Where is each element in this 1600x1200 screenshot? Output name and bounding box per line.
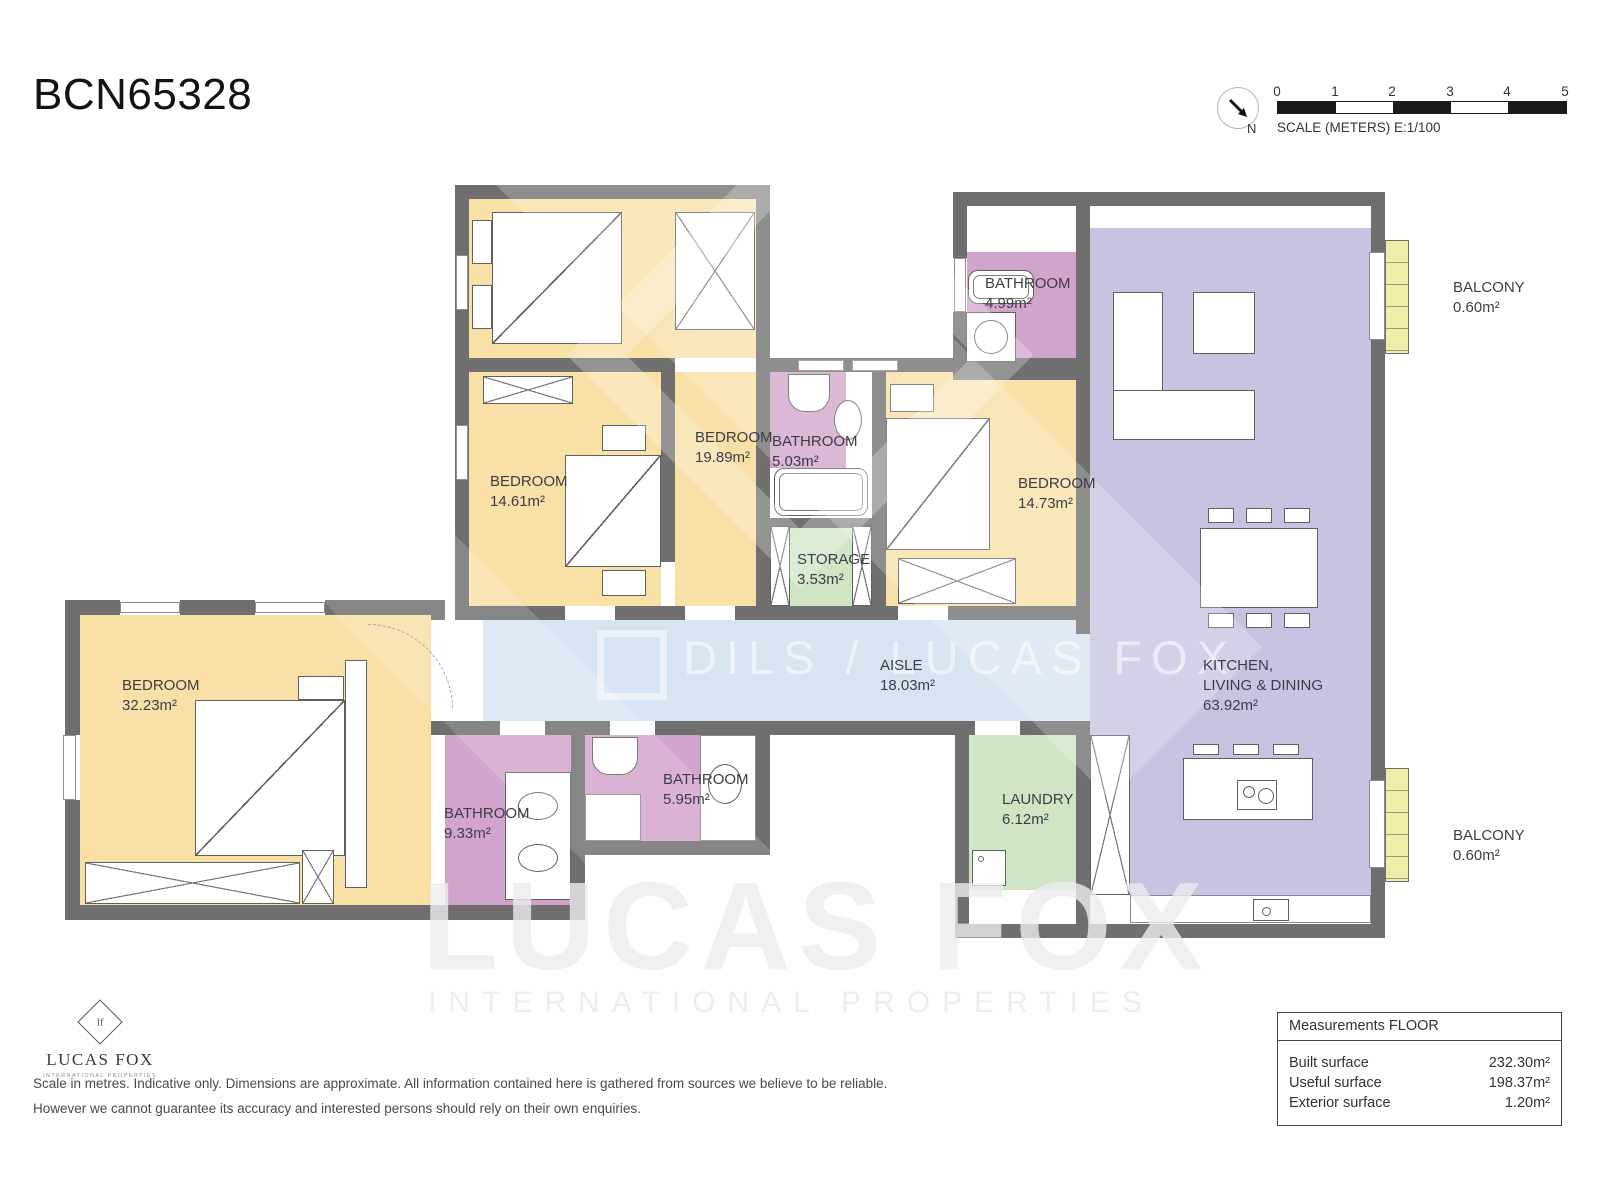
room-label-laundry: LAUNDRY 6.12m²: [1002, 790, 1073, 830]
wall: [1020, 721, 1076, 735]
wall: [948, 606, 1090, 620]
window: [954, 258, 966, 312]
chair-icon: [1284, 613, 1310, 628]
wall: [953, 367, 1090, 380]
wall: [886, 606, 898, 620]
kitchen-counter: [1130, 895, 1371, 923]
wall: [756, 721, 770, 855]
bed-icon: [195, 700, 345, 856]
scalebar-tick: 4: [1503, 84, 1511, 99]
page-title: BCN65328: [33, 70, 252, 120]
wall: [431, 721, 500, 735]
room-name: LIVING & DINING: [1203, 676, 1323, 696]
measurement-label: Useful surface: [1289, 1073, 1382, 1093]
wardrobe-icon: [85, 862, 300, 904]
wardrobe-icon: [483, 376, 573, 404]
scalebar-tick: 1: [1331, 84, 1339, 99]
bathtub-icon: [774, 468, 868, 516]
sink-icon: [518, 844, 558, 872]
wardrobe-icon: [675, 212, 755, 330]
nightstand-icon: [298, 676, 344, 700]
window: [852, 360, 898, 371]
nightstand-icon: [602, 570, 646, 596]
room-area: 6.12m²: [1002, 810, 1073, 830]
headboard-icon: [345, 660, 367, 888]
washing-machine-icon: [972, 850, 1006, 886]
room-label-bedroom-14-73: BEDROOM 14.73m²: [1018, 474, 1096, 514]
table-row: Exterior surface 1.20m²: [1289, 1093, 1550, 1113]
pillow-icon: [472, 285, 492, 329]
window: [456, 425, 468, 480]
wall: [655, 721, 975, 735]
wall: [585, 841, 770, 855]
toilet-icon: [592, 737, 638, 775]
scalebar-tick: 0: [1273, 84, 1281, 99]
room-name: BEDROOM: [1018, 474, 1096, 494]
room-area: 5.03m²: [772, 452, 858, 472]
wall: [180, 600, 255, 615]
north-label: N: [1247, 121, 1256, 136]
washing-machine-knob: [978, 856, 984, 862]
wall: [65, 905, 445, 920]
lucas-fox-name: LUCAS FOX: [30, 1050, 170, 1070]
wall: [955, 924, 1385, 938]
floorplan-page: { "title": "BCN65328", "compass": { "nor…: [0, 0, 1600, 1200]
room-label-balcony-top: BALCONY 0.60m²: [1453, 278, 1525, 318]
wall: [431, 600, 445, 620]
room-name: LAUNDRY: [1002, 790, 1073, 810]
scalebar-caption: SCALE (METERS) E:1/100: [1277, 120, 1441, 135]
wall: [615, 606, 685, 620]
door-arc: [368, 624, 453, 709]
room-area: 9.33m²: [444, 824, 530, 844]
bed-icon: [492, 212, 622, 344]
room-area: 32.23m²: [122, 696, 200, 716]
wall: [455, 606, 565, 620]
measurement-value: 1.20m²: [1505, 1093, 1550, 1113]
wall: [1371, 340, 1385, 780]
room-area: 5.95m²: [663, 790, 749, 810]
room-label-kitchen: KITCHEN, LIVING & DINING 63.92m²: [1203, 656, 1323, 715]
wardrobe-icon: [302, 850, 334, 904]
shower-tray: [585, 794, 641, 841]
balcony-strip-top: [1385, 240, 1409, 354]
room-label-bathroom-5-03: BATHROOM 5.03m²: [772, 432, 858, 472]
room-name: BATHROOM: [444, 804, 530, 824]
table-row: Useful surface 198.37m²: [1289, 1073, 1550, 1093]
bed-icon: [886, 418, 990, 550]
nightstand-icon: [602, 425, 646, 451]
room-name: BEDROOM: [122, 676, 200, 696]
disclaimer-text: Scale in metres. Indicative only. Dimens…: [33, 1072, 887, 1122]
balcony-strip-bottom: [1385, 768, 1409, 882]
watermark-sub-text: INTERNATIONAL PROPERTIES: [428, 986, 1154, 1020]
wall: [1371, 192, 1385, 252]
room-name: STORAGE: [797, 550, 870, 570]
lucas-fox-diamond-icon: lf: [77, 999, 122, 1044]
wall: [955, 721, 969, 938]
wall: [571, 721, 585, 920]
wall: [1076, 721, 1090, 938]
room-name: BATHROOM: [663, 770, 749, 790]
table-row: Built surface 232.30m²: [1289, 1053, 1550, 1073]
stool-icon: [1193, 744, 1219, 755]
measurement-label: Built surface: [1289, 1053, 1369, 1073]
wall: [65, 800, 80, 920]
wall: [661, 372, 675, 562]
wall: [1076, 192, 1090, 634]
hob-burner: [1243, 786, 1255, 798]
sofa-icon: [1113, 390, 1255, 440]
measurement-label: Exterior surface: [1289, 1093, 1391, 1113]
room-area: 63.92m²: [1203, 696, 1323, 716]
coffee-table-icon: [1193, 292, 1255, 354]
scalebar-tick: 5: [1561, 84, 1569, 99]
kitchen-sink-icon: [1253, 899, 1289, 921]
room-label-bedroom-32: BEDROOM 32.23m²: [122, 676, 200, 716]
room-area: 0.60m²: [1453, 298, 1525, 318]
toilet-icon: [788, 374, 830, 412]
room-name: BATHROOM: [772, 432, 858, 452]
scalebar-tick: 3: [1446, 84, 1454, 99]
room-name: KITCHEN,: [1203, 656, 1323, 676]
room-label-aisle: AISLE 18.03m²: [880, 656, 935, 696]
wall: [445, 905, 585, 920]
chair-icon: [1284, 508, 1310, 523]
window-balcony-door: [1369, 780, 1385, 868]
chair-icon: [1246, 613, 1272, 628]
room-area: 18.03m²: [880, 676, 935, 696]
wall: [735, 606, 770, 620]
room-name: BALCONY: [1453, 826, 1525, 846]
room-area: 0.60m²: [1453, 846, 1525, 866]
measurements-header: Measurements FLOOR: [1278, 1013, 1561, 1041]
room-bedroom-19-col: [675, 372, 756, 606]
measurement-value: 198.37m²: [1489, 1073, 1550, 1093]
room-aisle: [483, 620, 1090, 721]
window-balcony-door: [1369, 252, 1385, 340]
pillow-icon: [472, 220, 492, 264]
stool-icon: [1233, 744, 1259, 755]
dining-table-icon: [1200, 528, 1318, 608]
room-name: BALCONY: [1453, 278, 1525, 298]
room-area: 19.89m²: [695, 448, 773, 468]
room-label-balcony-bottom: BALCONY 0.60m²: [1453, 826, 1525, 866]
room-area: 14.61m²: [490, 492, 568, 512]
room-area: 4.99m²: [985, 294, 1071, 314]
chair-icon: [1208, 613, 1234, 628]
room-label-bathroom-5-95: BATHROOM 5.95m²: [663, 770, 749, 810]
scalebar-ticks: 0 1 2 3 4 5: [1277, 84, 1565, 98]
wall: [1076, 192, 1385, 206]
room-label-bedroom-14-61: BEDROOM 14.61m²: [490, 472, 568, 512]
room-label-bathroom-4-99: BATHROOM 4.99m²: [985, 274, 1071, 314]
scalebar: [1277, 101, 1567, 114]
bed-icon: [565, 455, 661, 567]
disclaimer-line: Scale in metres. Indicative only. Dimens…: [33, 1072, 887, 1097]
wall: [455, 185, 469, 620]
wall: [455, 185, 770, 199]
lucas-fox-logo: lf LUCAS FOX INTERNATIONAL PROPERTIES: [30, 1000, 170, 1079]
room-label-storage: STORAGE 3.53m²: [797, 550, 870, 590]
measurements-table: Measurements FLOOR Built surface 232.30m…: [1277, 1012, 1562, 1126]
wall: [872, 358, 886, 620]
wardrobe-icon: [770, 526, 790, 606]
wall: [770, 606, 886, 620]
room-name: AISLE: [880, 656, 935, 676]
wall: [65, 600, 80, 735]
measurement-value: 232.30m²: [1489, 1053, 1550, 1073]
room-label-bathroom-9-33: BATHROOM 9.33m²: [444, 804, 530, 844]
room-name: BATHROOM: [985, 274, 1071, 294]
wardrobe-icon: [1090, 735, 1130, 895]
chair-icon: [1208, 508, 1234, 523]
chair-icon: [1246, 508, 1272, 523]
kitchen-sink-drain: [1262, 907, 1271, 916]
window: [798, 360, 844, 371]
room-label-bedroom-19: BEDROOM 19.89m²: [695, 428, 773, 468]
hob-burner: [1258, 788, 1274, 804]
sink-icon: [974, 320, 1008, 354]
scalebar-tick: 2: [1388, 84, 1396, 99]
room-name: BEDROOM: [490, 472, 568, 492]
window: [456, 255, 468, 310]
wall: [455, 358, 675, 372]
nightstand-icon: [890, 384, 934, 412]
window: [255, 602, 325, 613]
room-name: BEDROOM: [695, 428, 773, 448]
window: [120, 602, 180, 613]
wall: [953, 192, 967, 258]
room-area: 14.73m²: [1018, 494, 1096, 514]
wardrobe-icon: [898, 558, 1016, 604]
wall: [953, 192, 1090, 206]
wall: [325, 600, 445, 615]
disclaimer-line: However we cannot guarantee its accuracy…: [33, 1097, 887, 1122]
lucas-fox-monogram: lf: [97, 1016, 104, 1028]
room-area: 3.53m²: [797, 570, 870, 590]
stool-icon: [1273, 744, 1299, 755]
window: [63, 735, 76, 800]
wall: [756, 185, 770, 620]
